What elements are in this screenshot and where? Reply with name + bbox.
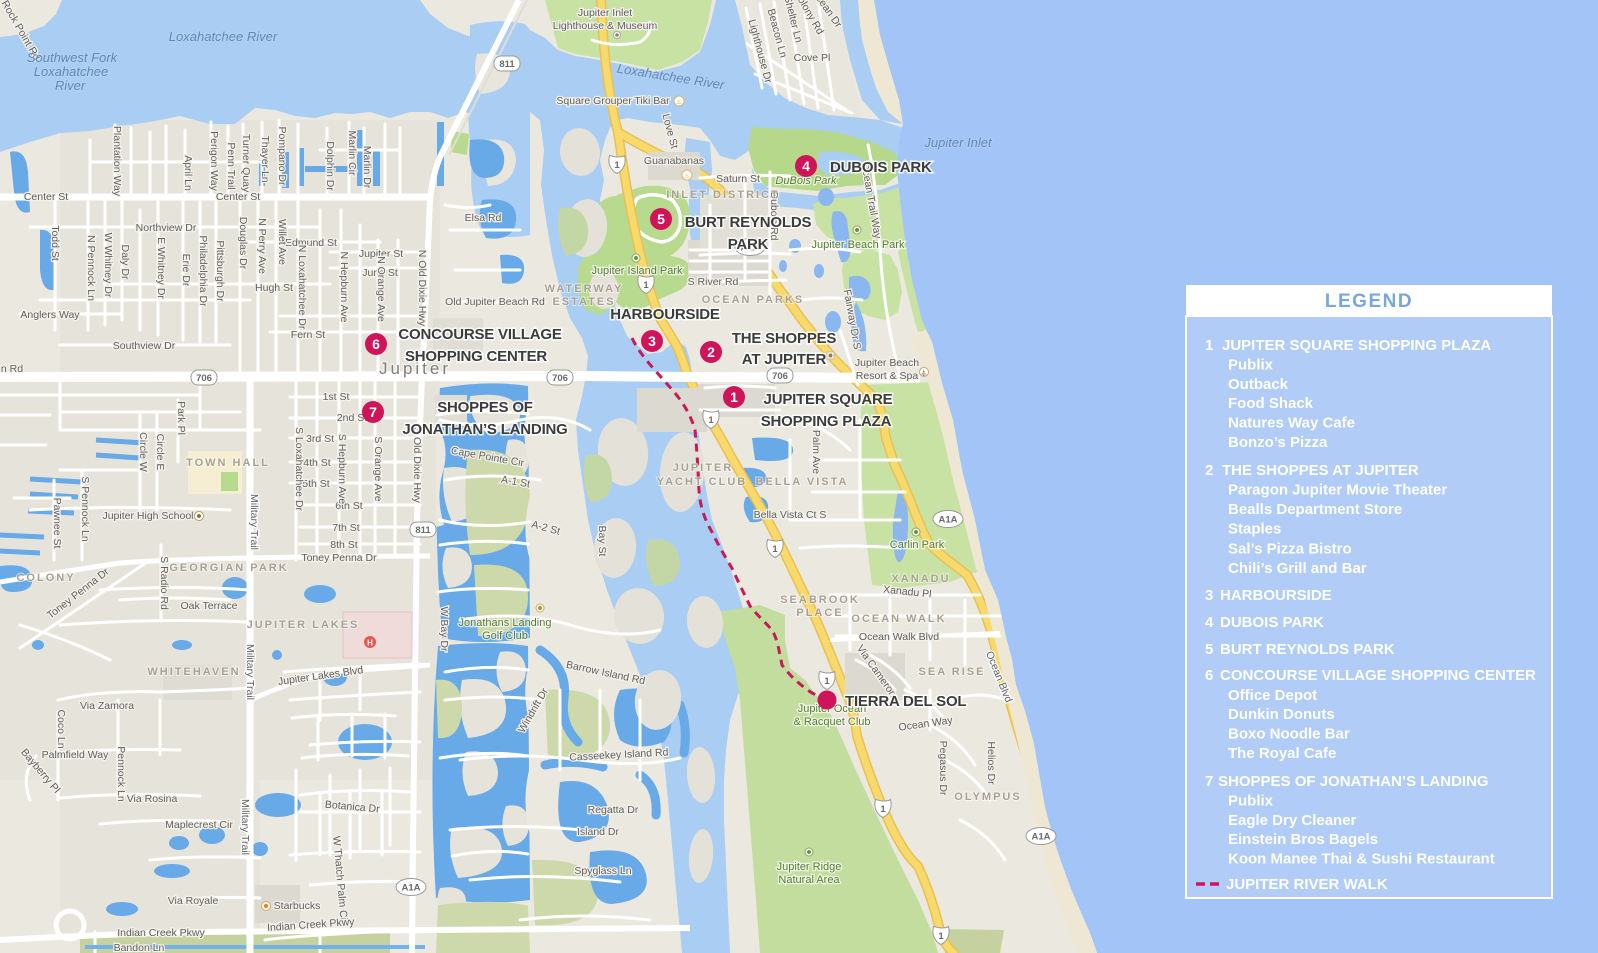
svg-text:A1A: A1A [1031, 832, 1050, 843]
svg-text:Daly Dr: Daly Dr [119, 244, 131, 280]
svg-text:811: 811 [415, 525, 431, 536]
svg-text:1: 1 [938, 931, 944, 942]
svg-text:WHITEHAVEN: WHITEHAVEN [147, 666, 240, 678]
svg-text:Pawnee St: Pawnee St [51, 498, 63, 549]
svg-text:W Whitney Dr: W Whitney Dr [102, 233, 114, 298]
svg-text:JUPITER SQUARE SHOPPING PLAZA: JUPITER SQUARE SHOPPING PLAZA [1222, 337, 1491, 354]
svg-text:Jupiter High School: Jupiter High School [102, 510, 193, 522]
svg-text:PLACE: PLACE [796, 607, 843, 619]
svg-text:Jupiter Island Park: Jupiter Island Park [591, 265, 683, 277]
svg-text:4: 4 [1205, 614, 1214, 631]
svg-text:SHOPPING CENTER: SHOPPING CENTER [405, 348, 547, 365]
svg-text:Jupiter Inlet: Jupiter Inlet [578, 7, 632, 19]
svg-text:Eagle Dry Cleaner: Eagle Dry Cleaner [1228, 812, 1357, 829]
svg-text:Pompano Dr: Pompano Dr [276, 127, 288, 186]
svg-text:Jupiter Beach Park: Jupiter Beach Park [812, 239, 905, 251]
svg-text:Bella Vista Ct S: Bella Vista Ct S [754, 509, 827, 521]
svg-text:OCEAN PARKS: OCEAN PARKS [702, 294, 804, 306]
svg-text:TIERRA DEL SOL: TIERRA DEL SOL [845, 693, 966, 710]
svg-text:Southwest Fork: Southwest Fork [27, 50, 119, 65]
svg-text:E Whitney Dr: E Whitney Dr [155, 237, 167, 299]
svg-text:Resort & Spa: Resort & Spa [856, 370, 919, 382]
svg-text:Pegasus Dr: Pegasus Dr [937, 741, 949, 796]
svg-text:Spyglass Ln: Spyglass Ln [574, 865, 631, 877]
svg-text:ESTATES: ESTATES [552, 296, 615, 308]
svg-text:Hugh St: Hugh St [255, 282, 293, 294]
svg-text:OCEAN WALK: OCEAN WALK [851, 613, 946, 625]
svg-text:SHOPPING PLAZA: SHOPPING PLAZA [761, 413, 892, 430]
svg-text:811: 811 [499, 59, 515, 70]
svg-text:CONCOURSE VILLAGE: CONCOURSE VILLAGE [398, 326, 561, 343]
svg-text:Bonzo’s Pizza: Bonzo’s Pizza [1228, 434, 1328, 451]
svg-text:Maplecrest Cir: Maplecrest Cir [165, 819, 233, 831]
svg-text:Palmfield Way: Palmfield Way [42, 749, 109, 761]
svg-text:3rd St: 3rd St [306, 433, 334, 445]
svg-text:Regatta Dr: Regatta Dr [588, 804, 639, 816]
svg-text:Circle W: Circle W [137, 432, 149, 472]
svg-text:Dunkin Donuts: Dunkin Donuts [1228, 706, 1335, 723]
svg-text:7: 7 [369, 404, 377, 420]
svg-text:Food Shack: Food Shack [1228, 395, 1314, 412]
svg-text:1: 1 [880, 804, 886, 815]
svg-text:S Hepburn Ave: S Hepburn Ave [336, 434, 348, 505]
svg-text:April Ln: April Ln [182, 155, 194, 191]
svg-text:N Perry Ave: N Perry Ave [256, 218, 268, 274]
svg-text:Willet Ave: Willet Ave [276, 219, 288, 265]
svg-text:Bealls Department Store: Bealls Department Store [1228, 501, 1402, 518]
svg-text:JUPITER: JUPITER [673, 462, 733, 474]
svg-text:Loxahatchee River: Loxahatchee River [169, 29, 278, 44]
svg-text:INLET DISTRICT: INLET DISTRICT [666, 189, 780, 201]
svg-text:Center St: Center St [216, 191, 260, 203]
svg-text:Guanabanas: Guanabanas [644, 155, 704, 167]
svg-text:Perigon Way: Perigon Way [208, 131, 220, 191]
svg-text:1: 1 [708, 415, 714, 426]
svg-text:BURT REYNOLDS PARK: BURT REYNOLDS PARK [1220, 641, 1395, 658]
svg-text:Paragon Jupiter Movie Theater: Paragon Jupiter Movie Theater [1228, 481, 1447, 498]
svg-text:706: 706 [196, 373, 212, 384]
svg-text:Einstein Bros Bagels: Einstein Bros Bagels [1228, 831, 1378, 848]
svg-text:Pennock Ln: Pennock Ln [115, 746, 127, 802]
svg-text:Military Trail: Military Trail [248, 494, 260, 550]
svg-text:4: 4 [802, 158, 810, 174]
svg-text:8th St: 8th St [330, 539, 358, 551]
svg-text:Fern St: Fern St [291, 329, 326, 341]
svg-text:Jonathans Landing: Jonathans Landing [459, 617, 552, 629]
svg-text:Palm Ave: Palm Ave [810, 430, 822, 474]
svg-text:N Pennock Ln: N Pennock Ln [85, 235, 97, 301]
svg-text:JONATHAN’S LANDING: JONATHAN’S LANDING [402, 421, 567, 438]
svg-text:Military Trail: Military Trail [239, 799, 251, 855]
svg-text:Thayer Ln: Thayer Ln [259, 135, 271, 182]
svg-text:Center St: Center St [24, 191, 68, 203]
svg-text:HARBOURSIDE: HARBOURSIDE [610, 306, 720, 323]
svg-text:S Orange Ave: S Orange Ave [372, 436, 384, 501]
svg-text:Helios Dr: Helios Dr [985, 741, 997, 785]
svg-text:N Old Dixie Hwy: N Old Dixie Hwy [416, 250, 428, 327]
svg-text:THE SHOPPES AT JUPITER: THE SHOPPES AT JUPITER [1222, 462, 1419, 479]
svg-text:Park Pl: Park Pl [175, 401, 187, 435]
svg-text:SEA RISE: SEA RISE [919, 666, 986, 678]
svg-text:Military Trail: Military Trail [244, 644, 256, 700]
svg-text:S Radio Rd: S Radio Rd [158, 556, 170, 610]
svg-text:DUBOIS PARK: DUBOIS PARK [830, 159, 932, 176]
svg-text:5: 5 [657, 211, 665, 227]
svg-text:Indian Creek Pkwy: Indian Creek Pkwy [117, 927, 205, 939]
svg-text:Starbucks: Starbucks [274, 900, 321, 912]
svg-text:Island Dr: Island Dr [577, 826, 620, 838]
svg-text:Bandon Ln: Bandon Ln [114, 942, 165, 953]
svg-text:JUPITER LAKES: JUPITER LAKES [247, 619, 360, 631]
svg-text:N Loxahatchee Dr: N Loxahatchee Dr [296, 245, 308, 330]
svg-text:Erie Dr: Erie Dr [180, 254, 192, 287]
svg-text:6: 6 [1205, 667, 1213, 684]
svg-text:N Hepburn Ave: N Hepburn Ave [338, 251, 350, 322]
svg-text:Marlin Dr: Marlin Dr [361, 146, 373, 189]
svg-text:The Royal Cafe: The Royal Cafe [1228, 745, 1336, 762]
svg-text:Saturn St: Saturn St [716, 173, 760, 185]
svg-text:AT JUPITER: AT JUPITER [742, 351, 827, 368]
svg-text:Via Zamora: Via Zamora [80, 700, 134, 712]
svg-text:YACHT CLUB: YACHT CLUB [657, 476, 748, 488]
svg-text:1: 1 [730, 389, 738, 405]
svg-text:3: 3 [1205, 587, 1213, 604]
svg-text:1: 1 [614, 160, 620, 171]
svg-text:1: 1 [643, 280, 649, 291]
svg-text:Plantation Way: Plantation Way [111, 126, 123, 197]
svg-text:H: H [367, 639, 373, 648]
svg-text:Jupiter Inlet: Jupiter Inlet [923, 135, 993, 150]
svg-text:Lighthouse & Museum: Lighthouse & Museum [553, 20, 658, 32]
svg-text:River: River [55, 78, 86, 93]
svg-text:2: 2 [1205, 462, 1213, 479]
svg-text:Todd St: Todd St [49, 225, 61, 261]
svg-text:Outback: Outback [1228, 376, 1289, 393]
svg-text:DUBOIS PARK: DUBOIS PARK [1220, 614, 1324, 631]
svg-text:SEABROOK: SEABROOK [780, 594, 860, 606]
svg-text:♨: ♨ [684, 172, 690, 180]
svg-text:Circle E: Circle E [154, 434, 166, 471]
svg-text:♨: ♨ [676, 98, 682, 106]
svg-text:Southview Dr: Southview Dr [113, 340, 176, 352]
svg-text:Douglas Dr: Douglas Dr [237, 217, 249, 270]
svg-text:Via Rosina: Via Rosina [127, 793, 178, 805]
svg-text:JUPITER SQUARE: JUPITER SQUARE [764, 391, 893, 408]
svg-text:A1A: A1A [401, 883, 420, 894]
svg-text:S Pennock Ln: S Pennock Ln [79, 476, 91, 542]
svg-text:4th St: 4th St [303, 457, 331, 469]
svg-text:THE SHOPPES: THE SHOPPES [732, 330, 837, 347]
svg-text:Chili’s Grill and Bar: Chili’s Grill and Bar [1228, 560, 1367, 577]
svg-text:BELLA VISTA: BELLA VISTA [756, 476, 849, 488]
svg-text:1: 1 [772, 544, 778, 555]
svg-text:OLYMPUS: OLYMPUS [954, 791, 1021, 803]
svg-text:Koon Manee Thai & Sushi Restau: Koon Manee Thai & Sushi Restaurant [1228, 851, 1495, 868]
svg-text:1: 1 [824, 676, 830, 687]
svg-text:COLONY: COLONY [16, 572, 75, 584]
svg-text:7th St: 7th St [332, 522, 360, 534]
svg-text:S Loxahatchee Dr: S Loxahatchee Dr [293, 427, 305, 512]
svg-text:HARBOURSIDE: HARBOURSIDE [1220, 587, 1332, 604]
svg-text:Coco Ln: Coco Ln [55, 709, 67, 748]
svg-text:n Rd: n Rd [1, 363, 23, 375]
svg-text:Natures Way Cafe: Natures Way Cafe [1228, 415, 1355, 432]
svg-text:Publix: Publix [1228, 356, 1274, 373]
svg-text:W Bay Dr: W Bay Dr [438, 607, 450, 652]
svg-text:Marlin Cir: Marlin Cir [346, 131, 358, 176]
svg-text:Toney Penna Dr: Toney Penna Dr [301, 552, 377, 564]
svg-text:Elsa Rd: Elsa Rd [465, 212, 502, 224]
svg-text:Staples: Staples [1228, 521, 1281, 538]
svg-text:⛪: ⛪ [920, 369, 927, 377]
svg-text:TOWN HALL: TOWN HALL [186, 457, 270, 469]
svg-text:Pittsburgh Dr: Pittsburgh Dr [214, 240, 226, 302]
svg-text:LEGEND: LEGEND [1325, 291, 1413, 312]
svg-text:PARK: PARK [728, 236, 769, 253]
svg-text:Square Grouper Tiki Bar: Square Grouper Tiki Bar [556, 95, 670, 107]
svg-text:2: 2 [707, 344, 715, 360]
svg-text:5th St: 5th St [302, 478, 330, 490]
svg-text:SHOPPES OF JONATHAN’S LANDING: SHOPPES OF JONATHAN’S LANDING [1218, 773, 1489, 790]
svg-text:5: 5 [1205, 641, 1213, 658]
svg-text:1st St: 1st St [323, 391, 350, 403]
svg-text:N Orange Ave: N Orange Ave [375, 256, 387, 322]
svg-text:Philadelphia Dr: Philadelphia Dr [197, 235, 209, 307]
svg-text:CONCOURSE VILLAGE SHOPPING CEN: CONCOURSE VILLAGE SHOPPING CENTER [1220, 667, 1536, 684]
svg-text:XANADU: XANADU [891, 573, 950, 585]
svg-text:Loxahatchee: Loxahatchee [34, 64, 108, 79]
svg-text:3: 3 [648, 333, 656, 349]
svg-text:A1A: A1A [938, 515, 957, 526]
svg-text:WATERWAY: WATERWAY [545, 283, 624, 295]
svg-text:Turner Quay: Turner Quay [240, 134, 252, 193]
svg-text:Oak Terrace: Oak Terrace [181, 600, 238, 612]
svg-text:Cove Pl: Cove Pl [794, 52, 831, 64]
svg-text:706: 706 [552, 373, 568, 384]
svg-text:Boxo Noodle Bar: Boxo Noodle Bar [1228, 726, 1350, 743]
svg-text:Edmund St: Edmund St [285, 237, 337, 249]
svg-text:706: 706 [772, 371, 788, 382]
svg-text:Penn Trail: Penn Trail [225, 142, 237, 189]
svg-text:SHOPPES OF: SHOPPES OF [437, 399, 533, 416]
svg-text:Dolphin Dr: Dolphin Dr [324, 141, 336, 191]
svg-text:Sal’s Pizza Bistro: Sal’s Pizza Bistro [1228, 540, 1352, 557]
svg-text:Office Depot: Office Depot [1228, 687, 1317, 704]
svg-text:Via Royale: Via Royale [168, 895, 219, 907]
svg-text:Ocean Walk Blvd: Ocean Walk Blvd [859, 631, 939, 643]
svg-text:GEORGIAN PARK: GEORGIAN PARK [169, 562, 288, 574]
svg-text:& Racquet Club: & Racquet Club [793, 716, 870, 728]
svg-text:6: 6 [372, 336, 380, 352]
svg-text:Jupiter Ridge: Jupiter Ridge [777, 861, 842, 873]
svg-text:7: 7 [1205, 773, 1213, 790]
svg-text:Natural Area: Natural Area [778, 874, 840, 886]
svg-text:Old Jupiter Beach Rd: Old Jupiter Beach Rd [445, 296, 545, 308]
svg-text:JUPITER RIVER WALK: JUPITER RIVER WALK [1226, 876, 1388, 893]
svg-text:Golf Club: Golf Club [482, 630, 528, 642]
svg-text:Jupiter Beach: Jupiter Beach [855, 357, 919, 369]
svg-text:Bay St: Bay St [596, 526, 608, 557]
svg-text:Anglers Way: Anglers Way [20, 309, 80, 321]
svg-text:Northview Dr: Northview Dr [136, 222, 197, 234]
svg-text:BURT REYNOLDS: BURT REYNOLDS [685, 214, 812, 231]
svg-text:Carlin Park: Carlin Park [890, 539, 945, 551]
svg-text:S Old Dixie Hwy: S Old Dixie Hwy [411, 427, 423, 504]
svg-text:1: 1 [1205, 337, 1213, 354]
svg-text:S River Rd: S River Rd [688, 276, 739, 288]
svg-text:Publix: Publix [1228, 792, 1274, 809]
